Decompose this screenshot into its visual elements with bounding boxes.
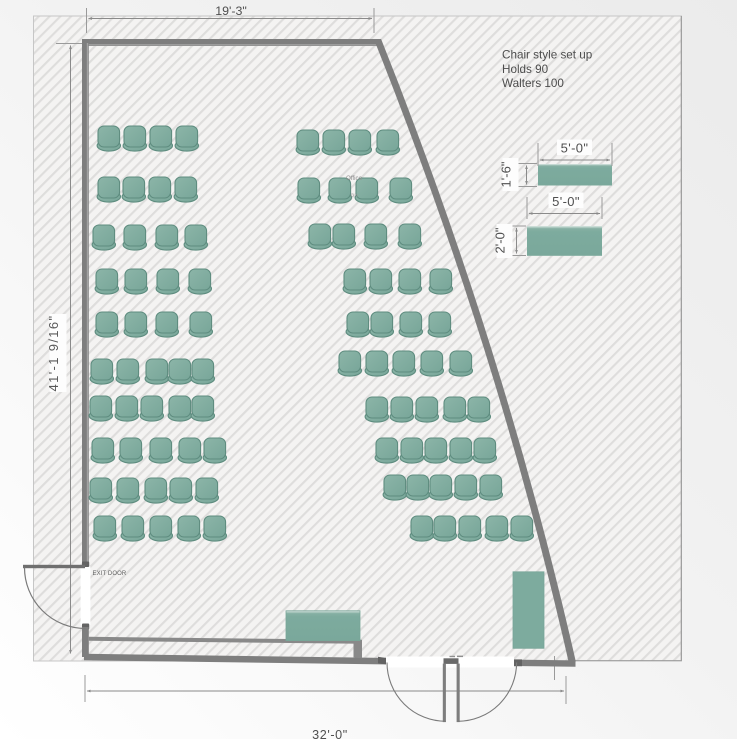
svg-text:Walters 100: Walters 100 <box>502 77 564 90</box>
svg-text:5'-0": 5'-0" <box>561 141 589 156</box>
svg-text:Holds 90: Holds 90 <box>502 63 549 76</box>
svg-text:B o: B o <box>351 193 358 198</box>
svg-text:5'-0": 5'-0" <box>552 194 580 209</box>
svg-text:1'-6": 1'-6" <box>499 161 514 187</box>
svg-text:41'-1 9/16": 41'-1 9/16" <box>46 315 61 392</box>
svg-text:Chair style set up: Chair style set up <box>502 48 593 61</box>
svg-text:2'-0": 2'-0" <box>493 227 508 253</box>
svg-text:EXIT DOOR: EXIT DOOR <box>93 571 127 577</box>
svg-text:Office: Office <box>346 175 363 182</box>
svg-text:19'-3": 19'-3" <box>215 4 247 18</box>
svg-text:32'-0": 32'-0" <box>312 728 348 739</box>
